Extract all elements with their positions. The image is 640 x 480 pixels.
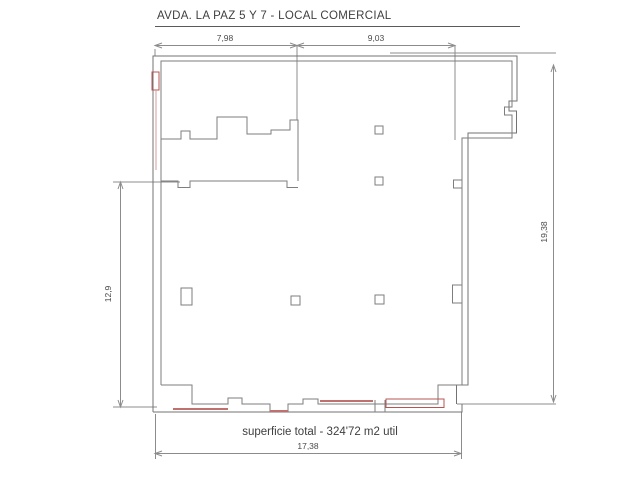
dim-label-left: 12,9 [103, 285, 113, 302]
dim-label-top-right: 9,03 [368, 33, 385, 43]
columns [181, 126, 384, 305]
column [181, 288, 192, 305]
dim-label-bottom: 17,38 [297, 441, 319, 451]
dimension-top: 7,98 9,03 [155, 33, 455, 140]
facade-opening-4 [386, 399, 444, 408]
dim-label-right: 19,38 [539, 221, 549, 243]
dimension-left: 12,9 [103, 182, 180, 407]
area-note: superficie total - 324'72 m2 util [242, 426, 398, 438]
column [375, 295, 384, 304]
column [375, 126, 383, 134]
dim-label-top-left: 7,98 [217, 33, 234, 43]
interior-partition [161, 117, 298, 188]
floor-plan-svg: AVDA. LA PAZ 5 Y 7 - LOCAL COMERCIAL 7,9… [0, 0, 640, 480]
dimension-right: 19,38 [390, 53, 556, 404]
outer-walls [153, 56, 517, 412]
column [291, 296, 300, 305]
drawing-sheet: AVDA. LA PAZ 5 Y 7 - LOCAL COMERCIAL 7,9… [0, 0, 640, 480]
drawing-title: AVDA. LA PAZ 5 Y 7 - LOCAL COMERCIAL [157, 10, 392, 22]
column [375, 177, 383, 185]
